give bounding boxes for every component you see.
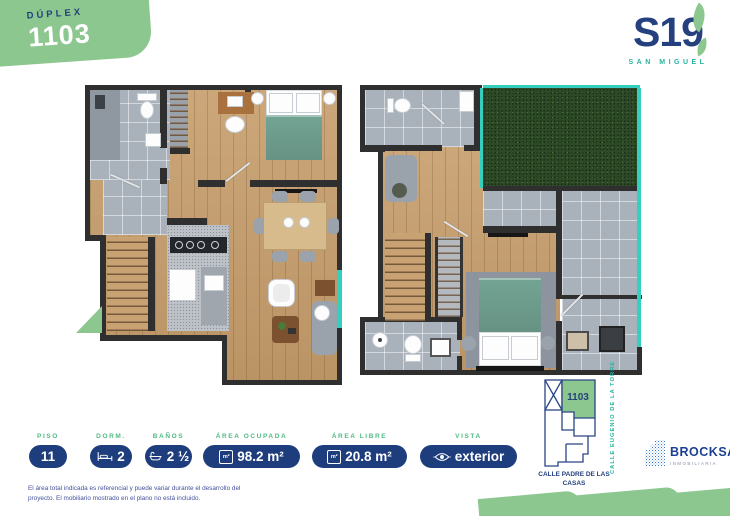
plan-notch: [85, 341, 225, 385]
wall: [457, 356, 462, 375]
street-label-vertical: CALLE EUGENIO DE LA TORRE: [610, 372, 616, 474]
burner: [175, 241, 183, 249]
stat-label: ÁREA OCUPADA: [203, 433, 300, 440]
wall: [100, 335, 227, 341]
wall: [160, 90, 167, 148]
nightstand: [323, 92, 336, 105]
stairs: [107, 237, 148, 331]
bed-blanket: [266, 115, 322, 160]
dining-chair: [300, 191, 316, 202]
grass-terrace: [483, 88, 637, 188]
armchair-seat: [273, 284, 290, 302]
area-libre-pill: m² 20.8 m²: [312, 445, 407, 468]
dining-chair: [272, 251, 288, 262]
laundry-sink: [566, 331, 589, 351]
wall: [337, 85, 342, 385]
wall: [378, 150, 383, 320]
wall: [457, 322, 462, 340]
burner: [211, 241, 219, 249]
wall: [360, 145, 442, 151]
stat-banos: BAÑOS 2 ½: [145, 433, 192, 468]
stat-piso: PISO 11: [29, 433, 67, 468]
wall: [464, 145, 480, 151]
pillow: [511, 336, 538, 360]
toilet: [387, 98, 394, 113]
toilet: [394, 98, 411, 113]
area-icon: m²: [327, 450, 341, 464]
dining-table: [263, 202, 327, 250]
wall: [556, 321, 562, 370]
floor-plan-lower-level: [85, 85, 342, 385]
brocksa-name: BROCKSA: [670, 446, 730, 459]
stat-label: VISTA: [420, 433, 517, 440]
wall: [562, 295, 642, 299]
stool: [461, 336, 476, 351]
wall: [222, 335, 227, 385]
wall: [425, 233, 431, 321]
brocksa-logo: BROCKSA INMOBILIARIA: [645, 440, 730, 466]
location-map: 1103: [538, 374, 610, 478]
wall: [167, 218, 207, 225]
bed-blanket: [479, 278, 541, 332]
floor-plan-upper-level: [360, 85, 642, 375]
wall: [160, 168, 167, 184]
pillow: [269, 93, 293, 113]
decor: [288, 328, 296, 334]
side-table: [315, 280, 335, 296]
wardrobe: [170, 90, 188, 148]
stool: [541, 336, 555, 350]
street-label-bottom: CALLE PADRE DE LAS CASAS: [532, 470, 616, 489]
bed-icon: [97, 451, 113, 462]
headboard: [476, 366, 544, 371]
dining-chair: [300, 251, 316, 262]
stat-label: ÁREA LIBRE: [312, 433, 407, 440]
wall: [148, 237, 155, 331]
sink: [430, 338, 451, 357]
glass-railing: [637, 88, 641, 347]
hill-shape: [567, 486, 681, 516]
stat-value: 2 ½: [167, 449, 190, 464]
entrance-arrow-icon: [76, 306, 102, 333]
sofa-pillow: [314, 305, 330, 321]
stat-value: 2: [117, 449, 125, 464]
map-unit-label: 1103: [567, 392, 589, 403]
shower-drain: [378, 338, 382, 342]
glass-railing: [483, 85, 640, 88]
disclaimer-text: El área total indicada es referencial y …: [28, 484, 260, 504]
brocksa-text: BROCKSA INMOBILIARIA: [670, 440, 730, 466]
shower-head: [95, 95, 105, 109]
washer: [599, 326, 625, 352]
toilet: [137, 93, 157, 101]
duplex-1103-floorplan-page: DÚPLEX 1103 S19 SAN MIGUEL: [0, 0, 730, 516]
pillow: [296, 93, 320, 113]
nightstand: [251, 92, 264, 105]
wall: [556, 191, 562, 299]
dorm-pill: 2: [90, 445, 132, 468]
stat-area-ocupada: ÁREA OCUPADA m² 98.2 m²: [203, 433, 300, 468]
bathtub-icon: [148, 451, 163, 462]
stat-value: 98.2 m²: [237, 449, 284, 464]
stat-vista: VISTA exterior: [420, 433, 517, 468]
vista-pill: exterior: [420, 445, 517, 468]
s19-logo-text: S19: [612, 12, 724, 53]
wall: [198, 180, 225, 187]
stat-label: DORM.: [90, 433, 132, 440]
toilet: [140, 101, 154, 119]
area-ocupada-pill: m² 98.2 m²: [203, 445, 300, 468]
burner: [186, 241, 194, 249]
plate: [299, 217, 310, 228]
sink: [145, 133, 161, 147]
banos-pill: 2 ½: [145, 445, 192, 468]
hill-shape: [478, 490, 582, 516]
brocksa-building-icon: [645, 440, 665, 466]
tv: [488, 233, 528, 237]
toilet: [405, 354, 421, 362]
glass-railing: [480, 88, 483, 188]
stat-label: PISO: [29, 433, 67, 440]
s19-logo: S19 SAN MIGUEL: [612, 12, 724, 66]
burner: [197, 241, 205, 249]
wall: [360, 317, 365, 375]
wall: [250, 180, 342, 187]
wall: [360, 85, 482, 90]
dining-chair: [328, 218, 339, 234]
wall: [483, 226, 562, 233]
plate: [283, 217, 294, 228]
s19-logo-subtitle: SAN MIGUEL: [612, 59, 724, 66]
sofa-pillow: [392, 183, 407, 198]
stat-dormitorios: DORM. 2: [90, 433, 132, 468]
window: [337, 270, 342, 328]
unit-badge: DÚPLEX 1103: [0, 0, 153, 68]
desk-chair: [225, 116, 245, 133]
brocksa-tagline: INMOBILIARIA: [670, 461, 730, 466]
fridge: [169, 269, 196, 301]
stairs: [385, 233, 425, 321]
wardrobe: [435, 237, 463, 317]
wall: [637, 347, 642, 375]
green-hills-decoration: [480, 490, 730, 516]
wall: [222, 380, 342, 385]
entry-corridor-floor: [103, 180, 167, 235]
toilet: [404, 335, 422, 354]
building-footprint-map: 1103: [538, 374, 610, 478]
piso-pill: 11: [29, 445, 67, 468]
kitchen-sink: [204, 275, 224, 291]
stats-row: PISO 11 DORM. 2 BAÑOS 2 ½ ÁREA OCUPADA m…: [0, 433, 730, 478]
pillow: [482, 336, 509, 360]
area-icon: m²: [219, 450, 233, 464]
stat-value: 20.8 m²: [345, 449, 392, 464]
plant: [278, 322, 286, 330]
dining-chair: [272, 191, 288, 202]
stat-label: BAÑOS: [145, 433, 192, 440]
sink: [459, 91, 474, 112]
stat-area-libre: ÁREA LIBRE m² 20.8 m²: [312, 433, 407, 468]
wall: [170, 148, 190, 154]
wall: [360, 85, 365, 151]
laptop: [227, 96, 243, 107]
stat-value: exterior: [455, 449, 505, 464]
stat-value: 11: [41, 449, 55, 464]
terrace-floor: [483, 191, 560, 229]
eye-icon: [433, 451, 451, 463]
